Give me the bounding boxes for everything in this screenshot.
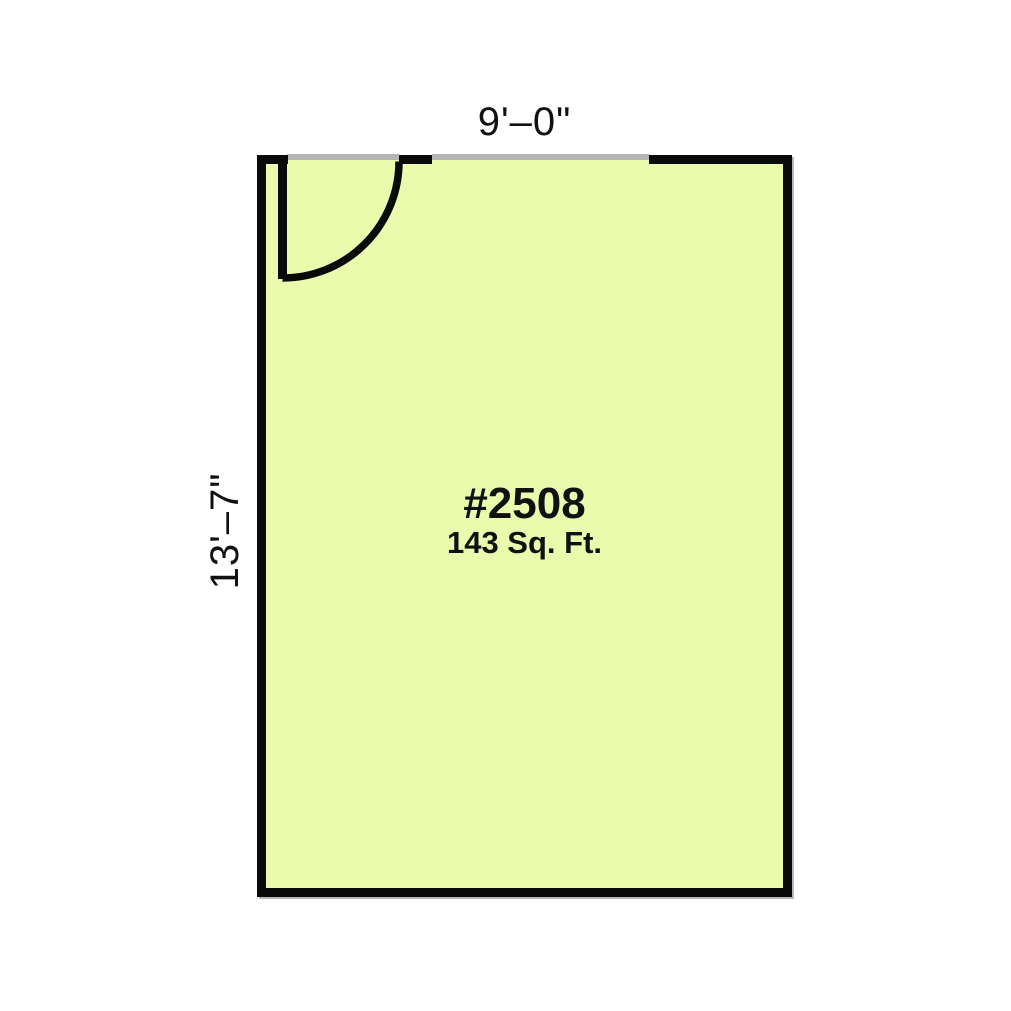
- room-label-block: #2508 143 Sq. Ft.: [257, 483, 792, 561]
- unit-number-label: #2508: [257, 483, 792, 525]
- floor-plan-canvas: 9'–0" 13'–7" #2508 143 Sq. Ft.: [0, 0, 1011, 1011]
- height-dimension-label: 13'–7": [206, 473, 244, 590]
- area-label: 143 Sq. Ft.: [257, 525, 792, 561]
- width-dimension-label: 9'–0": [257, 103, 792, 141]
